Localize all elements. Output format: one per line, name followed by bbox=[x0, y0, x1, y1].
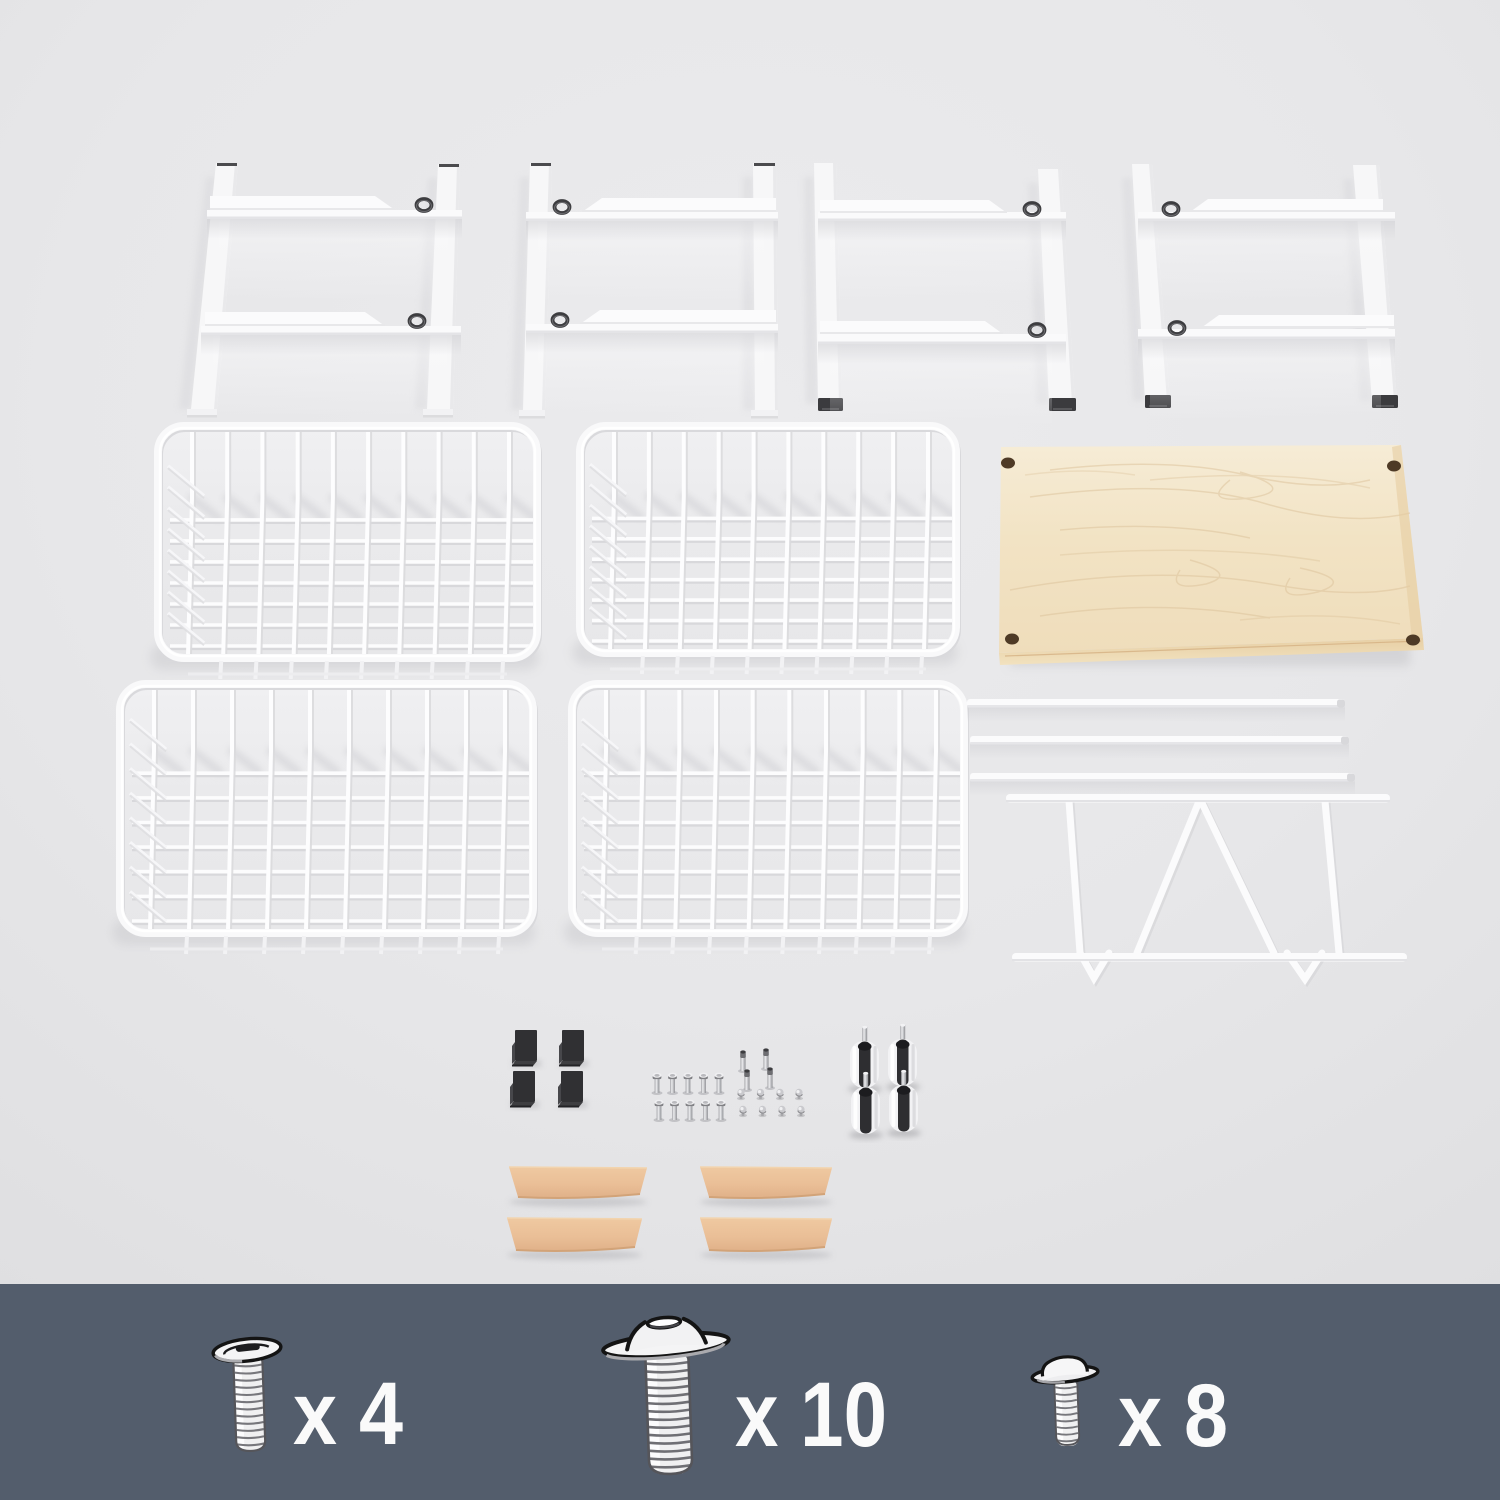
svg-text:x 8: x 8 bbox=[1118, 1365, 1228, 1465]
svg-text:x 4: x 4 bbox=[293, 1363, 403, 1463]
svg-text:x 10: x 10 bbox=[735, 1364, 887, 1466]
